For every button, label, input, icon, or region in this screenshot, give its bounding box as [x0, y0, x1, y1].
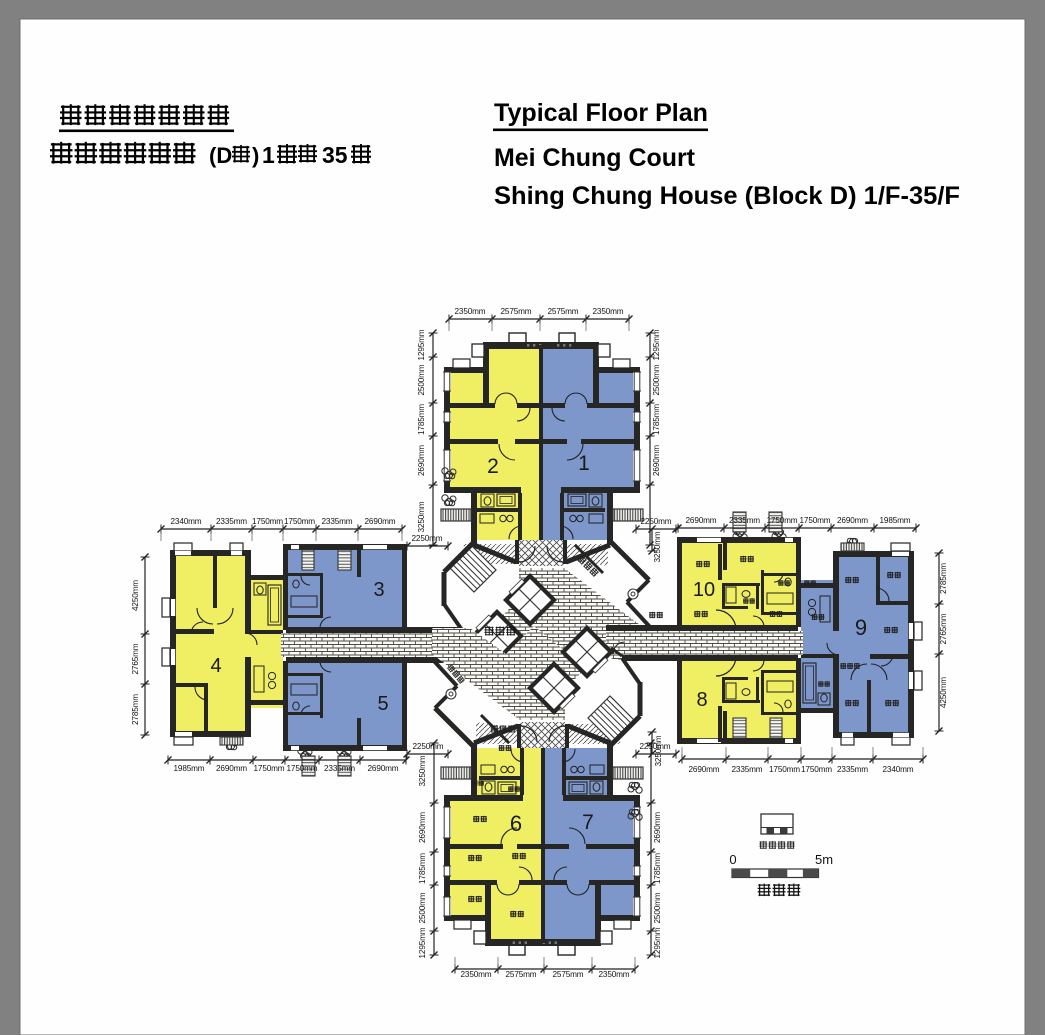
- svg-text:5: 5: [377, 693, 388, 715]
- svg-text:2690mm: 2690mm: [365, 517, 396, 526]
- svg-text:1750mm: 1750mm: [252, 517, 283, 526]
- svg-text:6: 6: [510, 811, 522, 836]
- svg-text:2500mm: 2500mm: [652, 364, 661, 395]
- svg-text:2335mm: 2335mm: [732, 765, 763, 774]
- svg-text:3250mm: 3250mm: [417, 501, 426, 532]
- svg-text:1750mm: 1750mm: [287, 764, 318, 773]
- svg-text:1750mm: 1750mm: [254, 764, 285, 773]
- svg-text:2575mm: 2575mm: [501, 307, 532, 316]
- svg-text:3: 3: [373, 579, 384, 601]
- svg-text:1750mm: 1750mm: [769, 765, 800, 774]
- svg-text:2: 2: [487, 455, 499, 478]
- svg-text:2350mm: 2350mm: [461, 970, 492, 979]
- svg-text:2250mm: 2250mm: [413, 742, 444, 751]
- svg-text:2335mm: 2335mm: [322, 517, 353, 526]
- svg-text:2765mm: 2765mm: [939, 613, 948, 644]
- svg-text:1785mm: 1785mm: [417, 404, 426, 435]
- svg-text:2335mm: 2335mm: [837, 765, 868, 774]
- svg-text:3250mm: 3250mm: [653, 531, 662, 562]
- svg-text:2350mm: 2350mm: [599, 970, 630, 979]
- svg-text:2350mm: 2350mm: [455, 307, 486, 316]
- svg-text:2575mm: 2575mm: [553, 970, 584, 979]
- svg-text:2340mm: 2340mm: [883, 765, 914, 774]
- svg-text:2350mm: 2350mm: [593, 307, 624, 316]
- svg-text:1295mm: 1295mm: [418, 927, 427, 958]
- svg-text:3250mm: 3250mm: [654, 735, 663, 766]
- svg-text:7: 7: [582, 811, 594, 834]
- svg-text:(D: (D: [209, 143, 232, 168]
- svg-text:2690mm: 2690mm: [653, 812, 662, 843]
- svg-text:1295mm: 1295mm: [652, 329, 661, 360]
- svg-text:Shing Chung House (Block D) 1/: Shing Chung House (Block D) 1/F-35/F: [494, 182, 960, 210]
- svg-text:2785mm: 2785mm: [131, 694, 140, 725]
- svg-text:2690mm: 2690mm: [837, 516, 868, 525]
- svg-text:1985mm: 1985mm: [880, 516, 911, 525]
- svg-text:1785mm: 1785mm: [652, 404, 661, 435]
- svg-text:1295mm: 1295mm: [653, 927, 662, 958]
- svg-text:1295mm: 1295mm: [417, 329, 426, 360]
- svg-text:9: 9: [855, 615, 867, 640]
- svg-text:3250mm: 3250mm: [418, 755, 427, 786]
- svg-text:2250mm: 2250mm: [412, 534, 443, 543]
- svg-text:0: 0: [729, 852, 736, 867]
- svg-text:1: 1: [578, 452, 590, 475]
- svg-text:): ): [252, 143, 259, 168]
- svg-text:2690mm: 2690mm: [418, 812, 427, 843]
- svg-text:2575mm: 2575mm: [548, 307, 579, 316]
- svg-text:2500mm: 2500mm: [418, 892, 427, 923]
- svg-text:1985mm: 1985mm: [174, 764, 205, 773]
- svg-text:2765mm: 2765mm: [131, 643, 140, 674]
- svg-text:Typical Floor Plan: Typical Floor Plan: [494, 99, 708, 127]
- svg-text:2340mm: 2340mm: [171, 517, 202, 526]
- svg-text:2690mm: 2690mm: [417, 445, 426, 476]
- svg-text:2250mm: 2250mm: [641, 517, 672, 526]
- svg-text:2500mm: 2500mm: [417, 364, 426, 395]
- svg-text:2690mm: 2690mm: [368, 764, 399, 773]
- svg-text:2335mm: 2335mm: [729, 516, 760, 525]
- svg-text:1750mm: 1750mm: [800, 516, 831, 525]
- svg-text:2690mm: 2690mm: [686, 516, 717, 525]
- svg-text:2785mm: 2785mm: [939, 563, 948, 594]
- svg-text:2335mm: 2335mm: [216, 517, 247, 526]
- svg-text:1750mm: 1750mm: [284, 517, 315, 526]
- svg-text:2335mm: 2335mm: [324, 764, 355, 773]
- svg-text:2500mm: 2500mm: [653, 892, 662, 923]
- svg-text:2690mm: 2690mm: [216, 764, 247, 773]
- svg-text:1750mm: 1750mm: [801, 765, 832, 774]
- svg-text:4250mm: 4250mm: [131, 580, 140, 611]
- svg-text:5m: 5m: [815, 852, 833, 867]
- svg-text:1785mm: 1785mm: [418, 853, 427, 884]
- svg-text:2690mm: 2690mm: [652, 445, 661, 476]
- svg-text:10: 10: [693, 579, 715, 601]
- svg-text:4: 4: [210, 655, 221, 677]
- svg-text:Mei Chung Court: Mei Chung Court: [494, 144, 696, 172]
- svg-text:4250mm: 4250mm: [939, 677, 948, 708]
- svg-text:2575mm: 2575mm: [506, 970, 537, 979]
- svg-text:1785mm: 1785mm: [653, 853, 662, 884]
- svg-text:8: 8: [696, 689, 707, 711]
- svg-text:1: 1: [262, 142, 275, 168]
- svg-text:2690mm: 2690mm: [689, 765, 720, 774]
- svg-text:1750mm: 1750mm: [767, 516, 798, 525]
- svg-text:35: 35: [322, 142, 348, 168]
